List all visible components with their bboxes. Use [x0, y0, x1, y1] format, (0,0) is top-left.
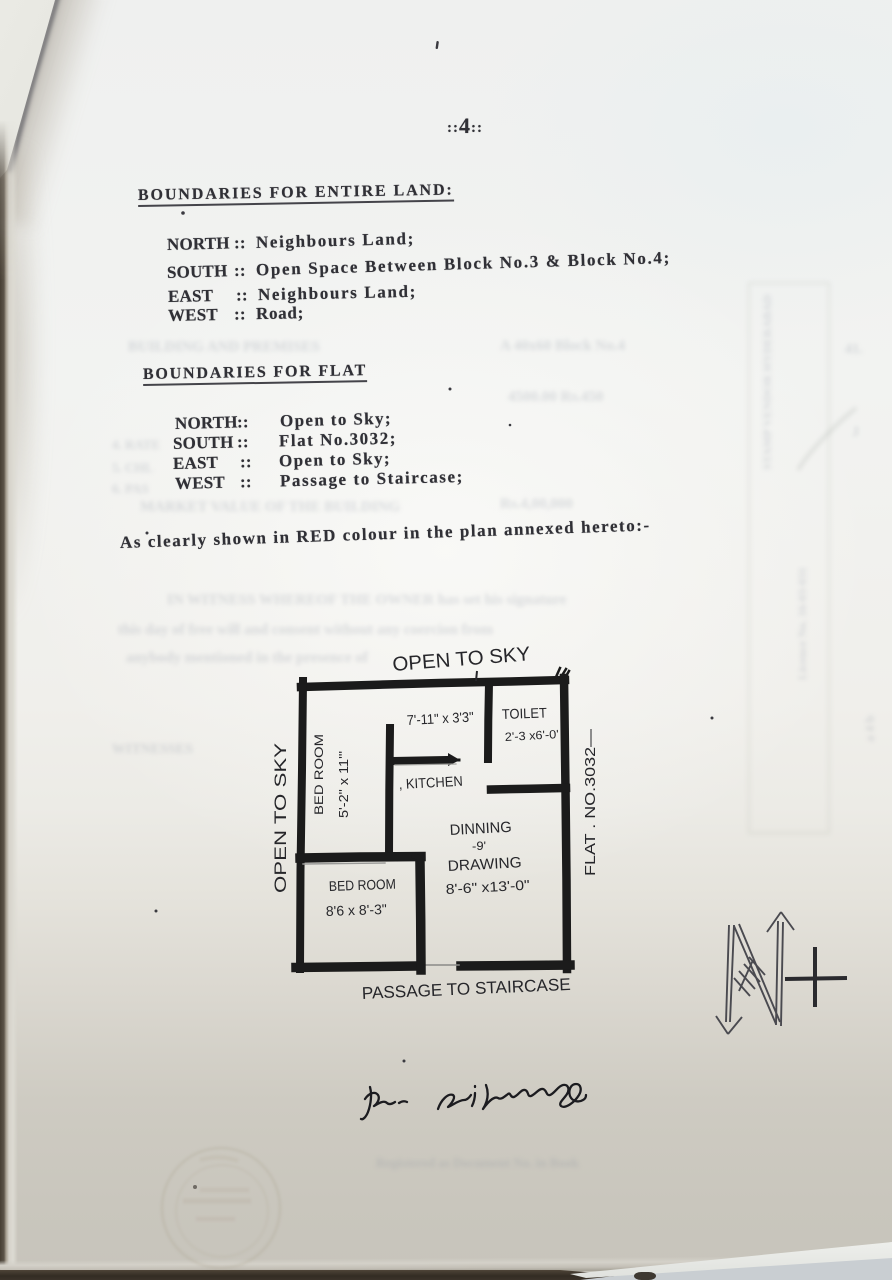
- svg-text:7'-11" x 3'3": 7'-11" x 3'3": [406, 709, 474, 728]
- svg-text:5'-2" x 11'": 5'-2" x 11'": [336, 751, 351, 818]
- svg-text:OPEN TO SKY: OPEN TO SKY: [392, 643, 531, 676]
- svg-text:2'-3 x6'-0': 2'-3 x6'-0': [504, 727, 559, 744]
- svg-text:FLAT . NO.3032—: FLAT . NO.3032—: [582, 729, 599, 876]
- svg-text:DINNING: DINNING: [449, 819, 512, 839]
- svg-text:, KITCHEN: , KITCHEN: [398, 773, 463, 792]
- svg-text:BED ROOM: BED ROOM: [329, 876, 397, 894]
- svg-text:-9': -9': [472, 839, 486, 853]
- svg-text:DRAWING: DRAWING: [447, 854, 522, 875]
- svg-text:8'6 x 8'-3": 8'6 x 8'-3": [326, 901, 388, 919]
- svg-text:PASSAGE TO STAIRCASE: PASSAGE TO STAIRCASE: [361, 975, 571, 1003]
- svg-text:BED ROOM: BED ROOM: [312, 734, 326, 815]
- svg-text:TOILET: TOILET: [502, 704, 548, 722]
- svg-text:8'-6" x13'-0": 8'-6" x13'-0": [445, 877, 530, 897]
- svg-text:OPEN TO SKY: OPEN TO SKY: [271, 743, 290, 893]
